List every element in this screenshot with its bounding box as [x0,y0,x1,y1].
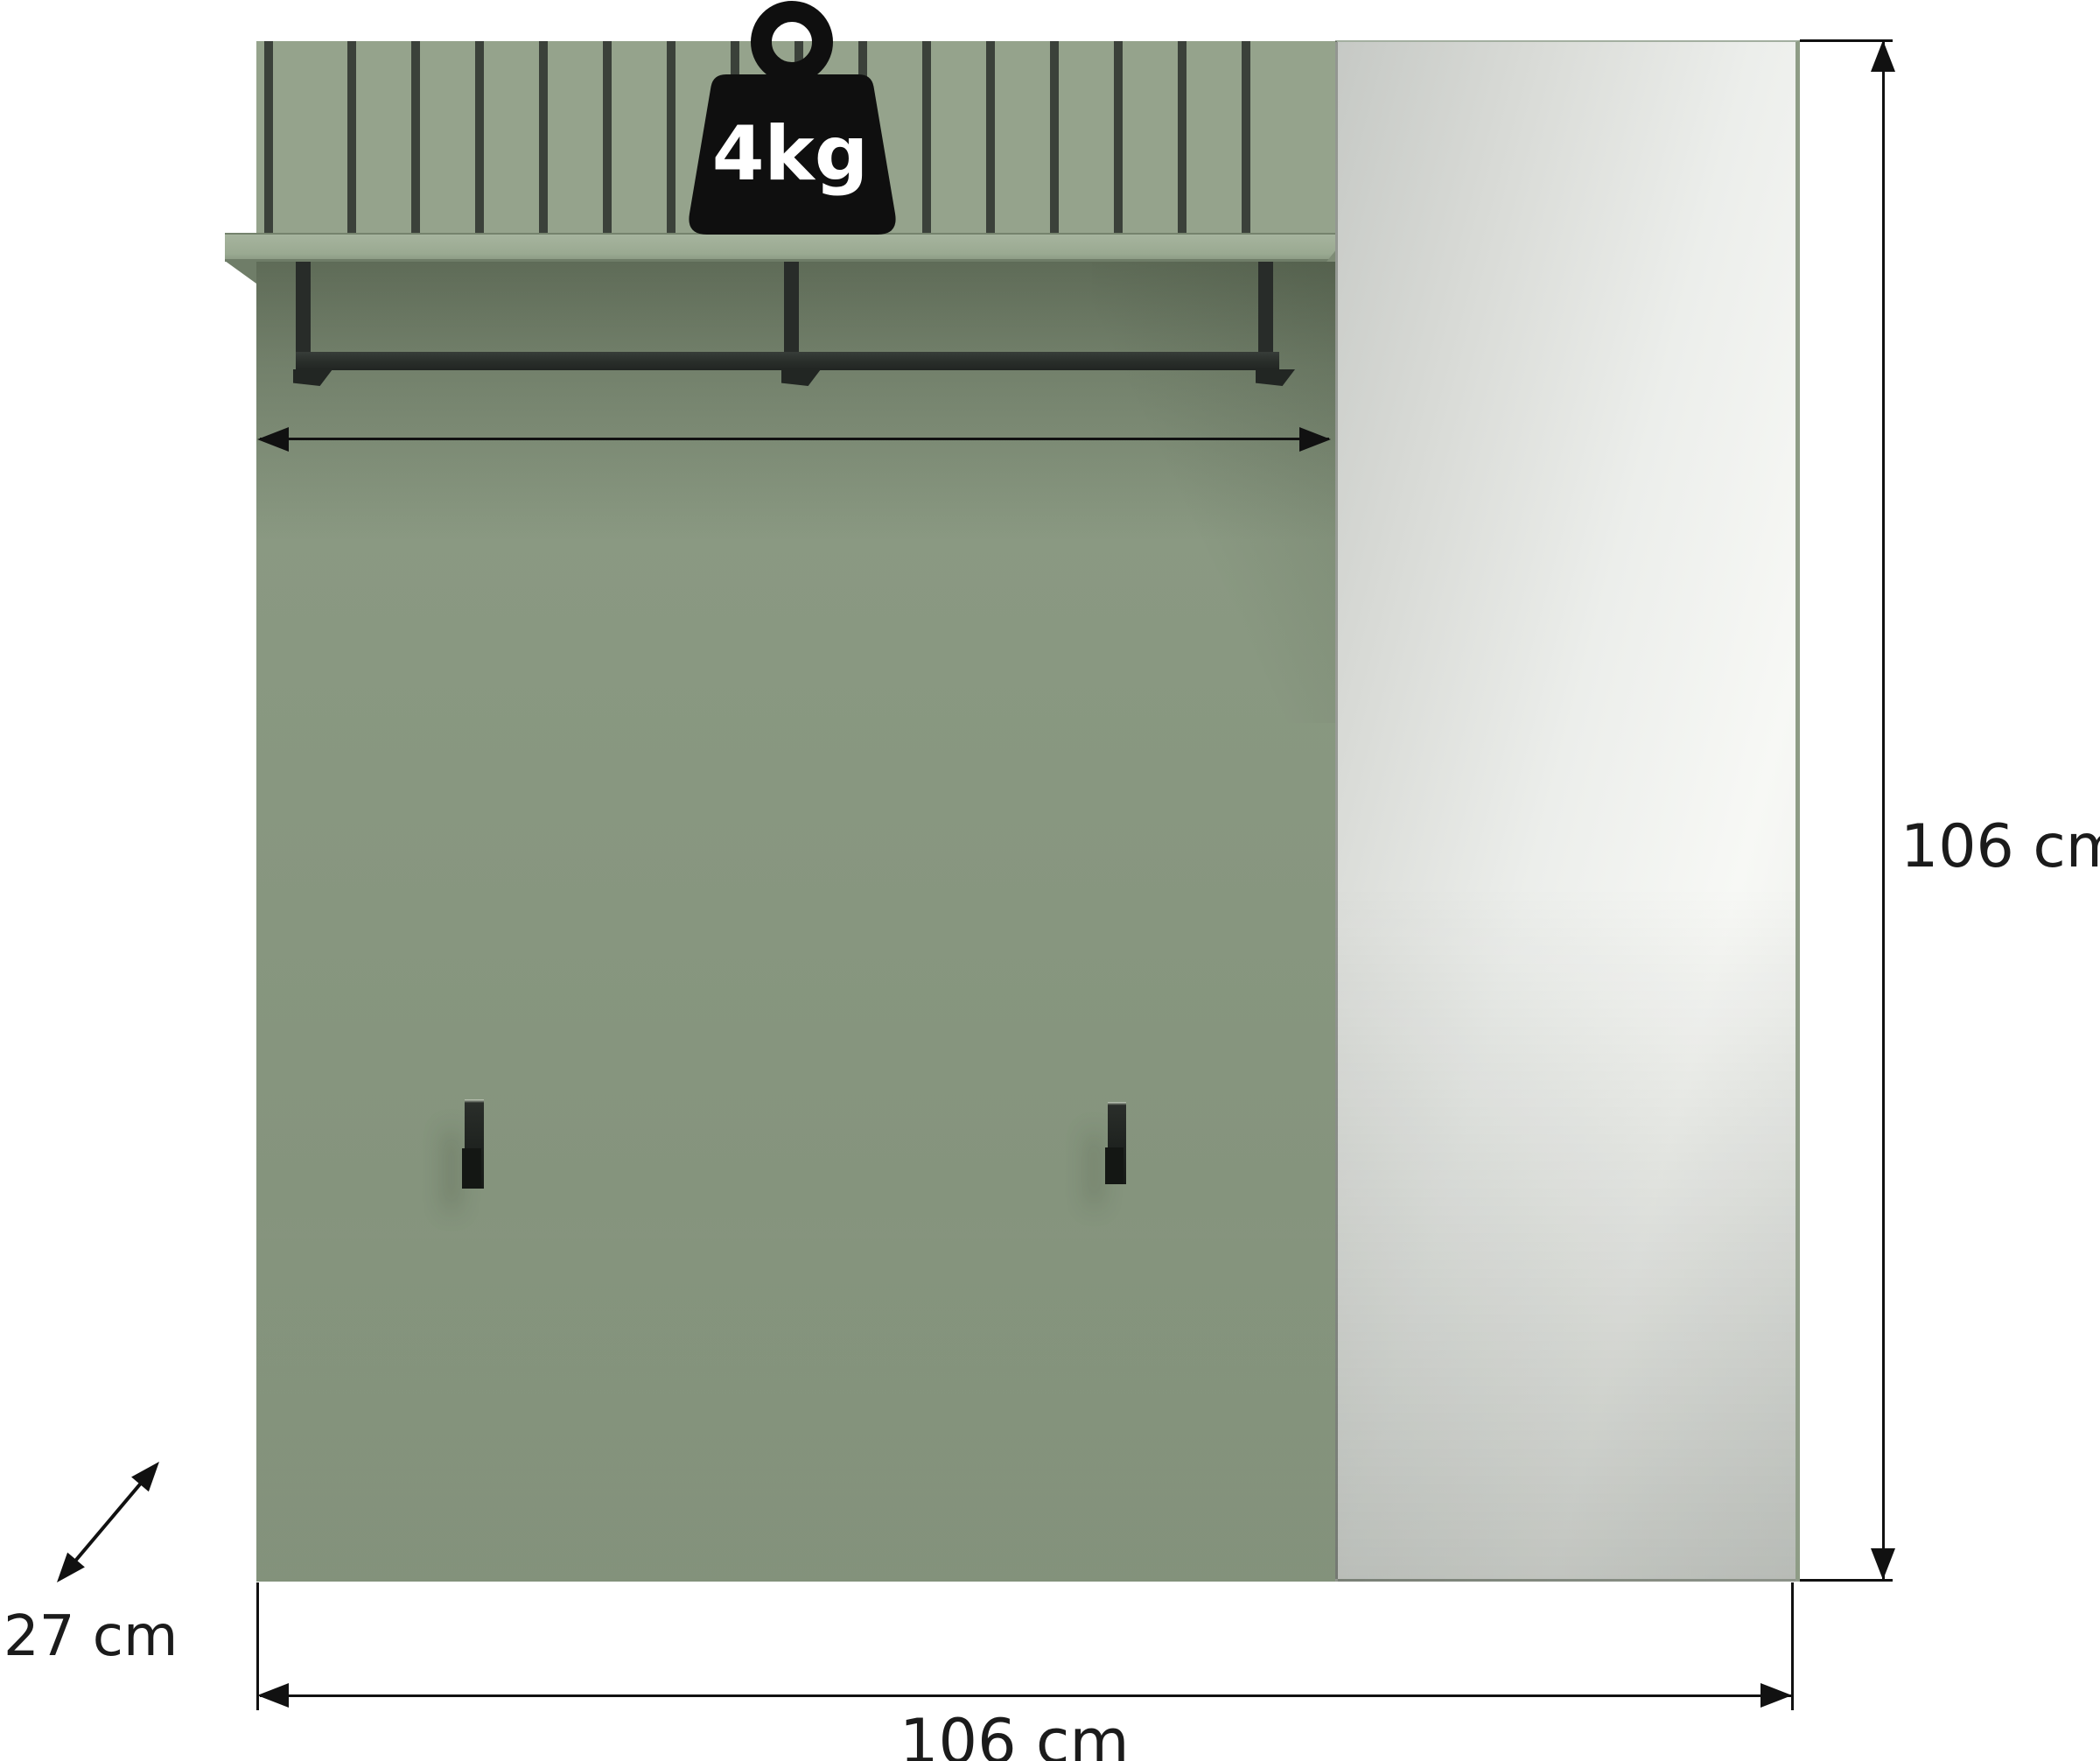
height-dimension-label: 106 cm [1900,817,2100,877]
rail-width-arrowhead-right [1299,427,1331,452]
panel-bottom-shading [256,1214,1337,1582]
coat-hook-left [465,1099,484,1189]
rail-width-arrowhead-left [257,427,289,452]
weight-capacity-badge: 4kg [691,116,889,192]
mirror [1335,40,1800,1582]
depth-dimension-label: 27 cm [3,1609,178,1665]
width-arrowhead-right [1760,1683,1792,1708]
coat-rail [296,352,1279,370]
rail-bracket-middle [784,262,799,353]
height-dimension-line [1882,42,1885,1580]
product-dimension-diagram: 4kg 106 cm 106 cm 27 cm [0,0,2100,1761]
rail-bracket-right [1258,262,1273,353]
rail-width-arrow [260,438,1329,440]
shelf-left-overhang [225,261,256,284]
height-arrowhead-top [1871,40,1895,72]
depth-diagonal-arrow [35,1444,184,1602]
rail-bracket-left [296,262,311,353]
width-dimension-label: 106 cm [899,1711,1130,1761]
width-dimension-line [260,1694,1792,1697]
width-arrowhead-left [257,1683,289,1708]
height-arrowhead-bottom [1871,1548,1895,1580]
coat-hook-right [1108,1102,1126,1184]
